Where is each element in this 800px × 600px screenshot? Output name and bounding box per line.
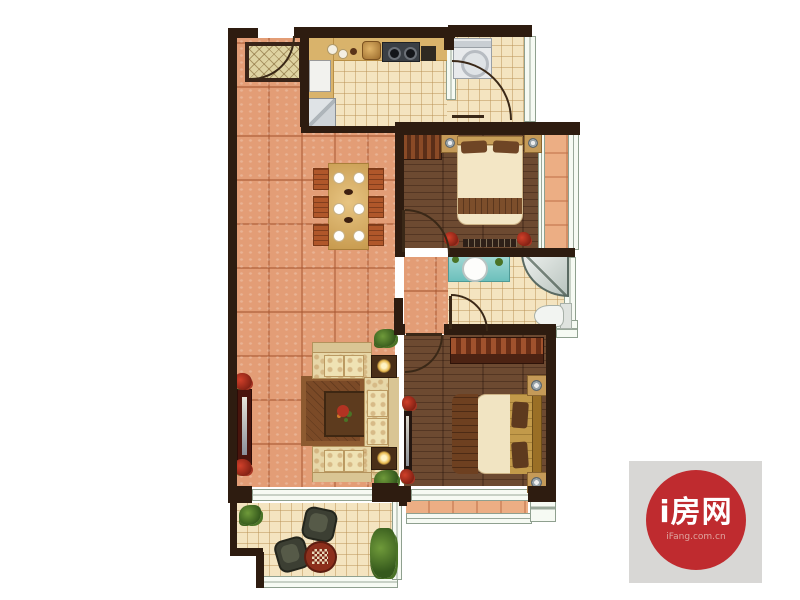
bedroom1-dresser	[463, 239, 517, 247]
place-setting	[353, 230, 365, 242]
wall-entry-kitchen	[300, 37, 309, 127]
lamp-side-table-top	[371, 355, 397, 378]
wall-master-top-left-stub	[394, 324, 405, 335]
balcony-corner-cutout	[226, 556, 258, 598]
dining-chair	[313, 196, 329, 218]
wall-bathroom-top	[448, 248, 575, 257]
bedroom1-lamp	[445, 138, 455, 148]
wall-left-outer	[228, 28, 237, 498]
watermark-logo: i房网 iFang.com.cn	[629, 461, 762, 583]
bedroom1-wardrobe	[402, 132, 442, 160]
bed-pillow	[511, 401, 529, 428]
place-setting	[333, 203, 345, 215]
flower-master-top	[402, 396, 416, 411]
window-master-bottom	[411, 489, 530, 501]
window-terrace-outer	[568, 130, 579, 250]
bread-basket	[362, 41, 381, 60]
sofa-two-seat-top	[312, 342, 372, 379]
master-door-leaf	[406, 333, 442, 336]
wall-balcony-left	[230, 498, 237, 554]
pillar-kitchen-laundry	[444, 28, 454, 50]
wall-master-right	[546, 330, 556, 502]
wall-top-laundry	[448, 25, 532, 37]
washer-panel	[454, 41, 491, 48]
vanity-sink	[462, 256, 488, 282]
sofa-back	[313, 472, 371, 482]
dining-chair	[368, 168, 384, 190]
wall-living-bottom-right	[372, 483, 398, 502]
chair-seat	[279, 542, 300, 564]
lamp-side-table-bottom	[371, 447, 397, 470]
window-bay-bottom	[406, 513, 532, 524]
bedroom1-door-leaf	[402, 210, 405, 252]
master-wardrobe	[450, 337, 544, 364]
place-setting	[333, 172, 345, 184]
dining-chair	[313, 224, 329, 246]
lamp-glow	[377, 359, 391, 373]
stove-burner	[388, 47, 401, 60]
fridge	[309, 60, 331, 92]
bed-runner	[452, 394, 478, 474]
gas-stove	[382, 42, 420, 62]
sofa-cushion	[344, 355, 364, 377]
side-terrace-floor	[544, 133, 568, 248]
plate	[338, 49, 348, 59]
flower-master-bottom	[400, 469, 414, 484]
chair-seat	[308, 512, 329, 533]
dining-chair	[313, 168, 329, 190]
watermark-circle: i房网 iFang.com.cn	[646, 470, 746, 570]
balcony-round-table	[304, 541, 337, 573]
plate	[327, 44, 338, 55]
bathroom-door-leaf	[449, 296, 452, 329]
stove-burner	[404, 47, 417, 60]
sofa-cushion	[324, 355, 344, 377]
vanity-plant	[452, 256, 459, 263]
bedroom1-bed	[457, 136, 523, 225]
place-setting	[333, 230, 345, 242]
wall-bay-left-stub	[399, 486, 407, 506]
floor-plan-canvas: i房网 iFang.com.cn	[0, 0, 800, 600]
sofa-cushion	[344, 450, 364, 472]
wall-balcony-left-lower	[256, 552, 264, 588]
master-tv-screen	[406, 416, 409, 466]
tv-screen	[242, 397, 247, 455]
dining-chair	[368, 224, 384, 246]
flower-bedroom1-right	[517, 232, 531, 246]
sofa-cushion	[324, 450, 344, 472]
master-nightstand-top	[527, 375, 547, 396]
lamp-glow	[377, 451, 391, 465]
coffee-table	[324, 391, 366, 437]
serving-dish	[344, 217, 353, 223]
watermark-subtitle: iFang.com.cn	[666, 532, 725, 542]
sofa-two-seat-bottom	[312, 446, 372, 482]
window-living-balcony	[252, 489, 374, 501]
bed-pillow	[511, 441, 529, 468]
flower-centerpiece	[337, 405, 349, 417]
laundry-door-leaf	[452, 115, 484, 118]
bed-runner	[458, 198, 522, 214]
master-tv-stand	[404, 411, 412, 471]
kitchen-appliance-box	[421, 46, 436, 61]
tv-cabinet	[237, 389, 252, 465]
vanity-plant	[495, 258, 503, 266]
sofa-cushion	[367, 390, 388, 417]
place-setting	[353, 172, 365, 184]
wall-master-bottom-pillar	[528, 486, 552, 502]
bed-pillow	[493, 140, 520, 153]
window-balcony-bottom	[262, 576, 398, 588]
bowl	[350, 48, 357, 55]
place-setting	[353, 203, 365, 215]
bed-pillow	[461, 140, 488, 153]
plant-balcony-right	[370, 528, 396, 578]
wall-top-kitchen	[294, 27, 455, 38]
hallway-floor	[404, 257, 448, 334]
sofa-cushion	[367, 418, 388, 445]
sofa-back	[313, 343, 371, 353]
bed-headboard	[532, 394, 542, 474]
window-laundry-right	[524, 36, 536, 122]
master-lamp	[531, 380, 542, 391]
dining-table	[328, 163, 369, 250]
master-bed	[452, 394, 542, 474]
chess-board	[312, 549, 328, 564]
watermark-title: i房网	[659, 498, 732, 528]
wall-bedroom1-top	[395, 122, 580, 135]
bedroom1-lamp	[528, 138, 538, 148]
bedroom1-nightstand-right	[524, 133, 542, 153]
dining-chair	[368, 196, 384, 218]
serving-dish	[344, 189, 353, 195]
